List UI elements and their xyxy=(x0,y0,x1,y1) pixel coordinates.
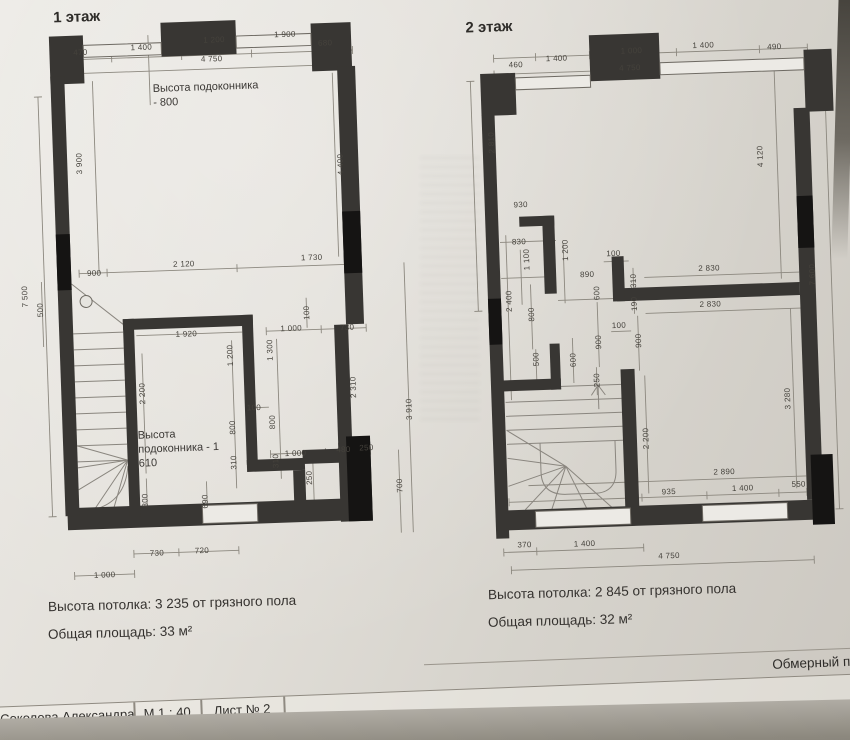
dim-label: 4 750 xyxy=(201,54,223,64)
dim-label: 720 xyxy=(195,546,210,555)
dim-label: 1 000 xyxy=(285,448,307,458)
scanned-floor-plan-sheet: 1 этаж Высота подоконника - 800 Высота п… xyxy=(0,0,850,740)
dim-label: 2 310 xyxy=(348,376,358,398)
doc-type-label: Обмерный п xyxy=(772,654,850,672)
dim-label: 100 xyxy=(606,249,621,258)
dim-label: 2 830 xyxy=(698,263,720,273)
dim-label: 935 xyxy=(662,487,677,496)
dim-label: 900 xyxy=(594,335,603,350)
dim-label: 1 400 xyxy=(732,483,754,493)
dim-label: 100 xyxy=(302,305,311,320)
floor2-dimension-lines xyxy=(465,43,845,575)
dim-label: 2 810 xyxy=(487,132,497,154)
dim-label: 800 xyxy=(527,307,536,322)
dim-label: 310 xyxy=(271,454,280,469)
dim-label: 1 900 xyxy=(274,29,296,39)
paper-bleed-texture xyxy=(420,150,480,420)
dim-label: 1 200 xyxy=(560,239,570,261)
dim-label: 1 400 xyxy=(692,40,714,50)
dim-label: 830 xyxy=(512,237,527,246)
dim-label: 1 100 xyxy=(522,249,532,271)
dim-label: 700 xyxy=(395,478,404,493)
dim-label: 4 120 xyxy=(755,145,765,167)
dim-label: 3 910 xyxy=(404,398,414,420)
dim-label: 2 200 xyxy=(137,383,147,405)
dim-label: 310 xyxy=(629,274,638,289)
dim-label: 480 xyxy=(336,445,351,454)
dim-label: 1 000 xyxy=(280,323,302,333)
dim-label: 550 xyxy=(791,479,806,488)
dim-label: 1 730 xyxy=(301,253,323,263)
dim-label: 600 xyxy=(568,353,577,368)
dim-label: 2 400 xyxy=(504,290,514,312)
dim-label: 1 000 xyxy=(620,46,642,56)
dim-label: 690 xyxy=(200,494,209,509)
dim-label: 7 500 xyxy=(20,286,30,308)
dim-label: 1 400 xyxy=(574,539,596,549)
dim-label: 470 xyxy=(73,48,88,57)
dim-label: 250 xyxy=(592,373,601,388)
floor2-area-note: Общая площадь: 32 м² xyxy=(488,611,633,630)
dim-label: 310 xyxy=(229,455,238,470)
dim-label: 4 750 xyxy=(658,551,680,561)
dim-label: 460 xyxy=(509,60,524,69)
dim-label: 4 750 xyxy=(619,63,641,73)
dim-label: 2 200 xyxy=(641,428,651,450)
dim-label: 250 xyxy=(359,443,374,452)
dim-label: 2 890 xyxy=(713,467,735,477)
dim-label: 250 xyxy=(305,470,314,485)
dim-label: 900 xyxy=(634,333,643,348)
dim-label: 500 xyxy=(36,303,45,318)
dim-label: 500 xyxy=(531,352,540,367)
dim-label: 1 200 xyxy=(203,35,225,45)
floor1-stairs xyxy=(71,282,129,511)
dim-label: 1 400 xyxy=(130,43,152,53)
dim-label: 1 400 xyxy=(546,54,568,64)
dim-label: 3 280 xyxy=(783,388,793,410)
dim-label: 7 600 xyxy=(807,264,817,286)
dim-label: 800 xyxy=(140,493,149,508)
dim-label: 930 xyxy=(513,200,528,209)
floor2-stairs xyxy=(505,384,625,512)
floor2-plan: 2 этаж 4601 4001 0001 4004904 7502 8102 … xyxy=(450,3,850,591)
dim-label: 730 xyxy=(150,548,165,557)
dim-label: 800 xyxy=(228,420,237,435)
dim-label: 890 xyxy=(580,270,595,279)
dim-label: 730 xyxy=(340,323,355,332)
dim-label: 680 xyxy=(318,38,333,47)
floor1-sill-note-top: Высота подоконника - 800 xyxy=(153,79,266,110)
dim-label: 900 xyxy=(87,268,102,277)
floor1-area-note: Общая площадь: 33 м² xyxy=(48,623,193,642)
floor1-sill-note-bottom: Высота подоконника - 1 610 xyxy=(138,427,229,471)
dim-label: 4 400 xyxy=(336,154,346,176)
dim-label: 100 xyxy=(612,321,627,330)
floor1-title: 1 этаж xyxy=(53,8,100,27)
dim-label: 1 200 xyxy=(225,345,235,367)
dim-label: 100 xyxy=(247,403,262,412)
dim-label: 600 xyxy=(592,286,601,301)
dim-label: 1 920 xyxy=(175,329,197,339)
floor2-title: 2 этаж xyxy=(465,18,512,37)
dim-label: 1 000 xyxy=(94,570,116,580)
dim-label: 2 120 xyxy=(173,259,195,269)
dim-label: 490 xyxy=(767,42,782,51)
dim-label: 370 xyxy=(517,540,532,549)
floor1-plan: 1 этаж Высота подоконника - 800 Высота п… xyxy=(10,0,475,600)
dim-label: 3 900 xyxy=(74,153,84,175)
dim-label: 190 xyxy=(629,297,638,312)
floor1-window-openings xyxy=(55,211,373,532)
dim-label: 2 830 xyxy=(699,299,721,309)
dim-label: 800 xyxy=(268,415,277,430)
dim-label: 1 300 xyxy=(265,339,275,361)
